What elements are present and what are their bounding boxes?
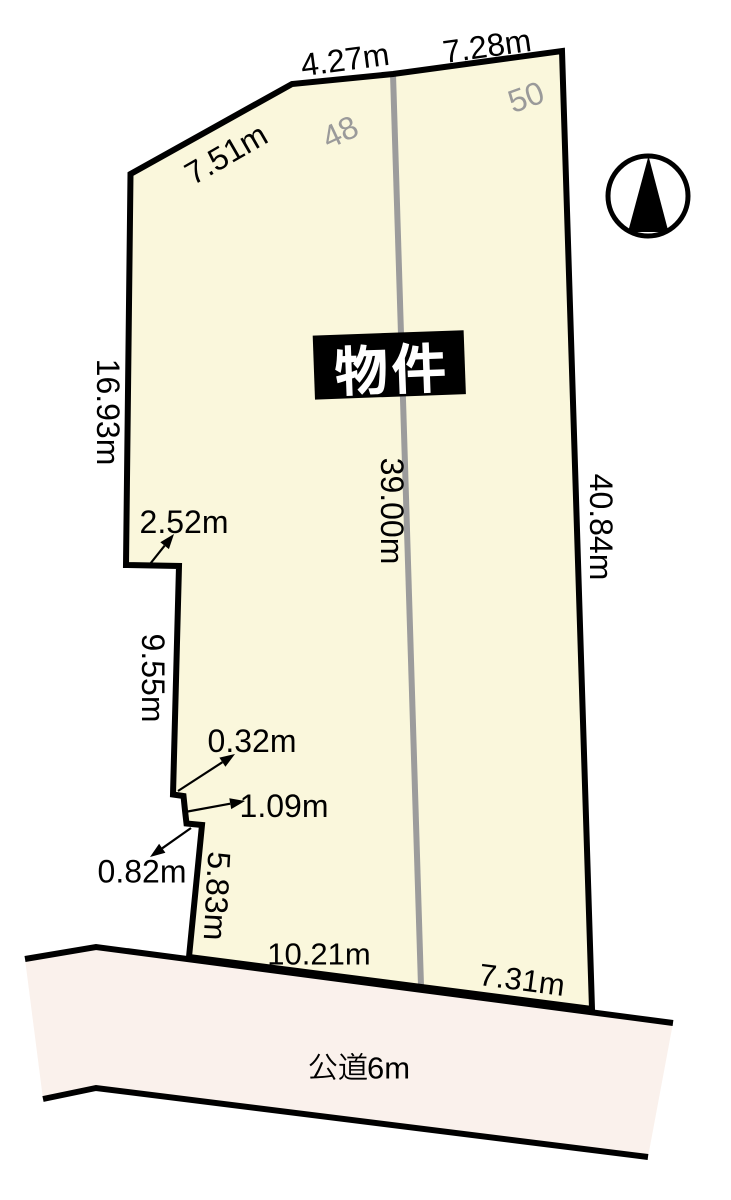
svg-text:39.00m: 39.00m: [374, 458, 410, 565]
svg-text:10.21m: 10.21m: [267, 937, 370, 972]
svg-text:40.84m: 40.84m: [583, 474, 619, 581]
svg-text:16.93m: 16.93m: [90, 359, 126, 466]
svg-text:0.82m: 0.82m: [98, 854, 187, 890]
svg-text:5.83m: 5.83m: [197, 851, 238, 942]
svg-text:1.09m: 1.09m: [240, 788, 329, 824]
svg-text:0.32m: 0.32m: [208, 723, 297, 759]
svg-text:9.55m: 9.55m: [135, 634, 171, 723]
svg-text:2.52m: 2.52m: [140, 504, 229, 540]
svg-text:6m: 6m: [367, 1051, 410, 1086]
